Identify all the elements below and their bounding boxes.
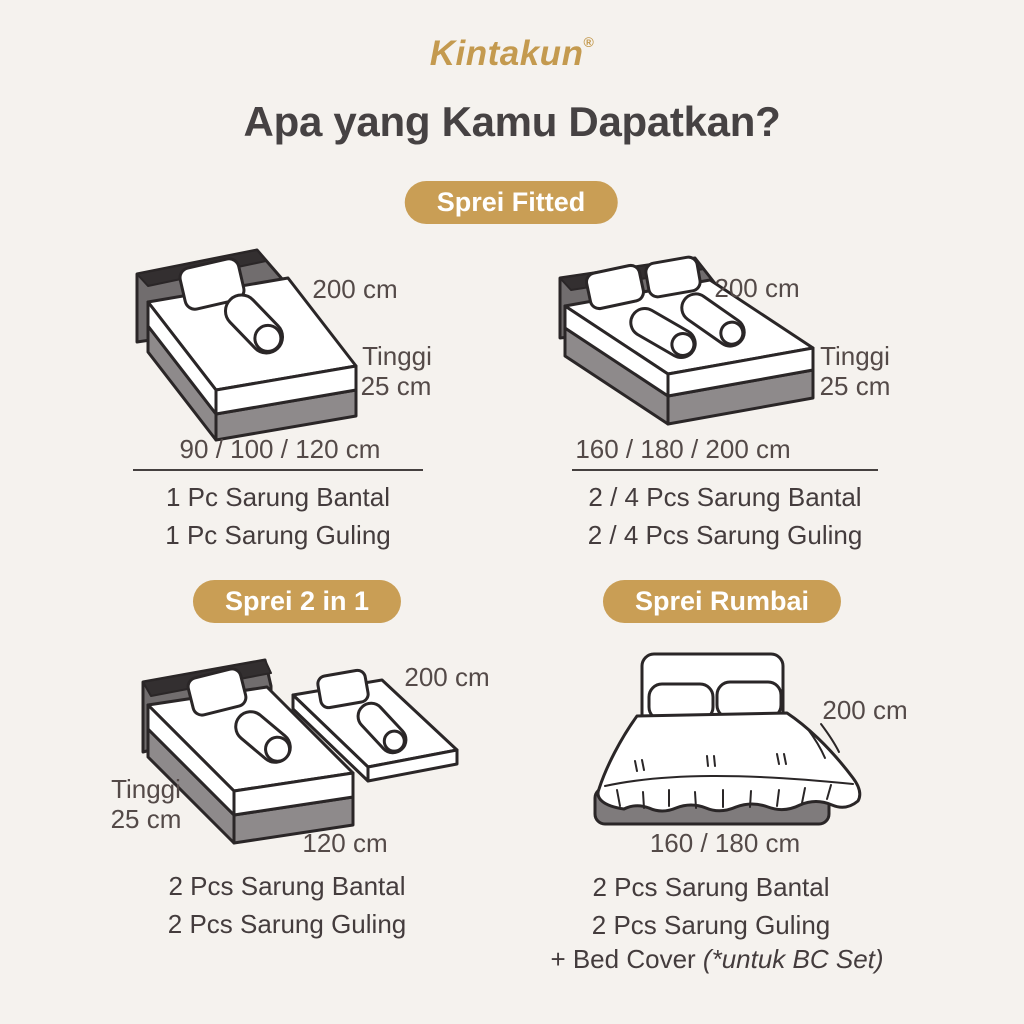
rumbai-item-sarung-bantal: 2 Pcs Sarung Bantal: [592, 872, 829, 902]
2in1-height-label-1: Tinggi: [111, 774, 181, 804]
fitted-double-height-label-2: 25 cm: [820, 371, 891, 401]
2in1-item-sarung-guling: 2 Pcs Sarung Guling: [168, 909, 406, 939]
badge-sprei-rumbai: Sprei Rumbai: [603, 580, 841, 623]
fitted-single-height-label-1: Tinggi: [362, 341, 432, 371]
bed-fitted-single-illustration: [100, 240, 500, 450]
2in1-height-label-2: 25 cm: [111, 804, 182, 834]
badge-sprei-2in1: Sprei 2 in 1: [193, 580, 401, 623]
rumbai-width-label: 200 cm: [822, 695, 907, 725]
bed-cover-bc-set-note: (*untuk BC Set): [703, 944, 884, 974]
bed-rumbai-illustration: [565, 640, 925, 860]
brand-logo: Kintakun®: [430, 34, 595, 74]
rumbai-item-sarung-guling: 2 Pcs Sarung Guling: [592, 910, 830, 940]
2in1-item-sarung-bantal: 2 Pcs Sarung Bantal: [168, 871, 405, 901]
registered-mark-icon: ®: [583, 34, 594, 50]
fitted-double-item-sarung-guling: 2 / 4 Pcs Sarung Guling: [588, 520, 863, 550]
fitted-single-item-sarung-bantal: 1 Pc Sarung Bantal: [166, 482, 390, 512]
fitted-single-separator: [133, 469, 423, 471]
brand-name: Kintakun: [430, 34, 584, 73]
fitted-double-width-label: 200 cm: [714, 273, 799, 303]
infographic-canvas: Kintakun® Apa yang Kamu Dapatkan? Sprei …: [0, 0, 1024, 1024]
fitted-double-sizes-label: 160 / 180 / 200 cm: [575, 434, 790, 464]
rumbai-bed-cover-note: + Bed Cover (*untuk BC Set): [550, 944, 883, 974]
fitted-single-item-sarung-guling: 1 Pc Sarung Guling: [165, 520, 390, 550]
page-title: Apa yang Kamu Dapatkan?: [244, 98, 781, 146]
fitted-single-width-label: 200 cm: [312, 274, 397, 304]
badge-sprei-fitted: Sprei Fitted: [405, 181, 618, 224]
fitted-double-height-label-1: Tinggi: [820, 341, 890, 371]
2in1-length-label: 120 cm: [302, 828, 387, 858]
bed-fitted-double-illustration: [545, 240, 845, 455]
bed-cover-prefix: + Bed Cover: [550, 944, 702, 974]
fitted-double-item-sarung-bantal: 2 / 4 Pcs Sarung Bantal: [588, 482, 861, 512]
fitted-single-sizes-label: 90 / 100 / 120 cm: [180, 434, 381, 464]
rumbai-sizes-label: 160 / 180 cm: [650, 828, 800, 858]
fitted-double-separator: [572, 469, 878, 471]
2in1-width-label: 200 cm: [404, 662, 489, 692]
fitted-single-height-label-2: 25 cm: [361, 371, 432, 401]
